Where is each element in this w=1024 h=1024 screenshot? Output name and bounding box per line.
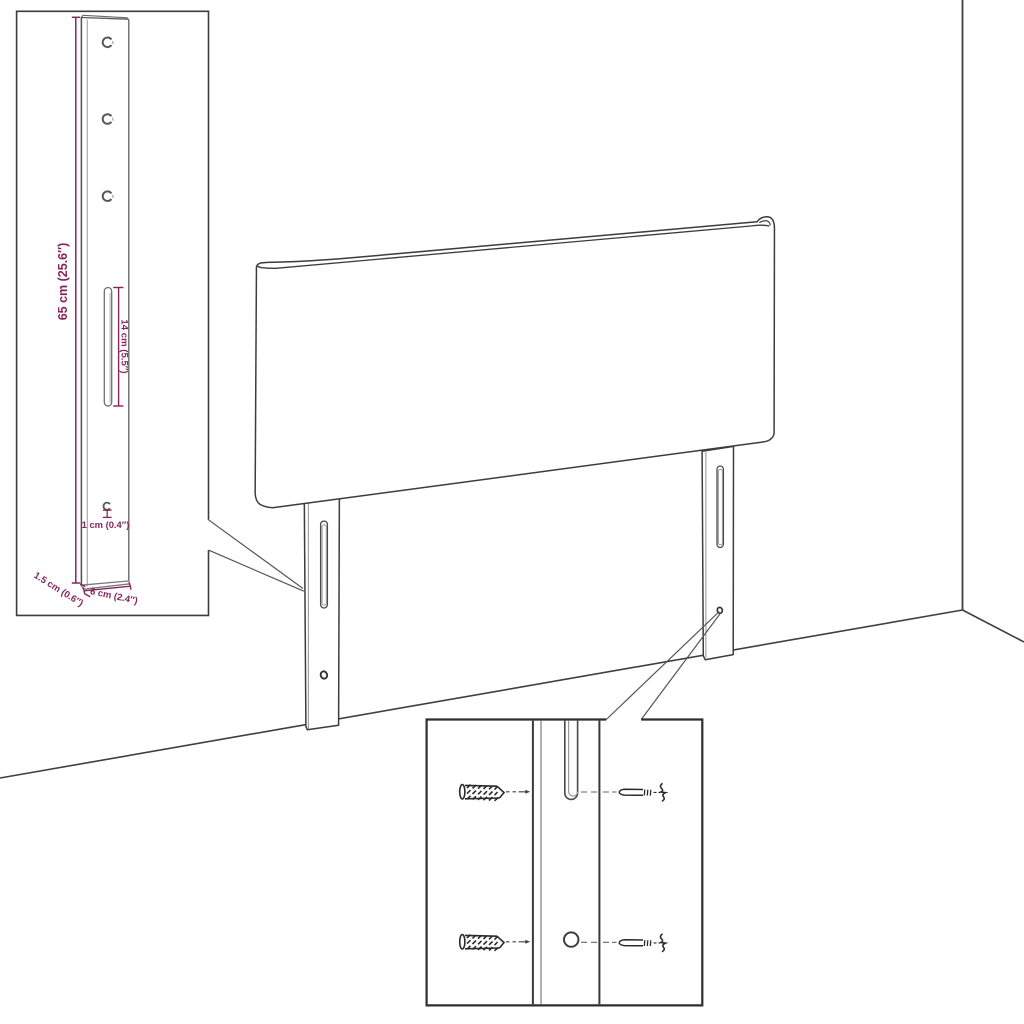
svg-text:1 cm (0.4″): 1 cm (0.4″) <box>82 519 130 530</box>
svg-text:14 cm (5.5″): 14 cm (5.5″) <box>118 319 129 373</box>
svg-text:65 cm (25.6″): 65 cm (25.6″) <box>56 243 70 321</box>
